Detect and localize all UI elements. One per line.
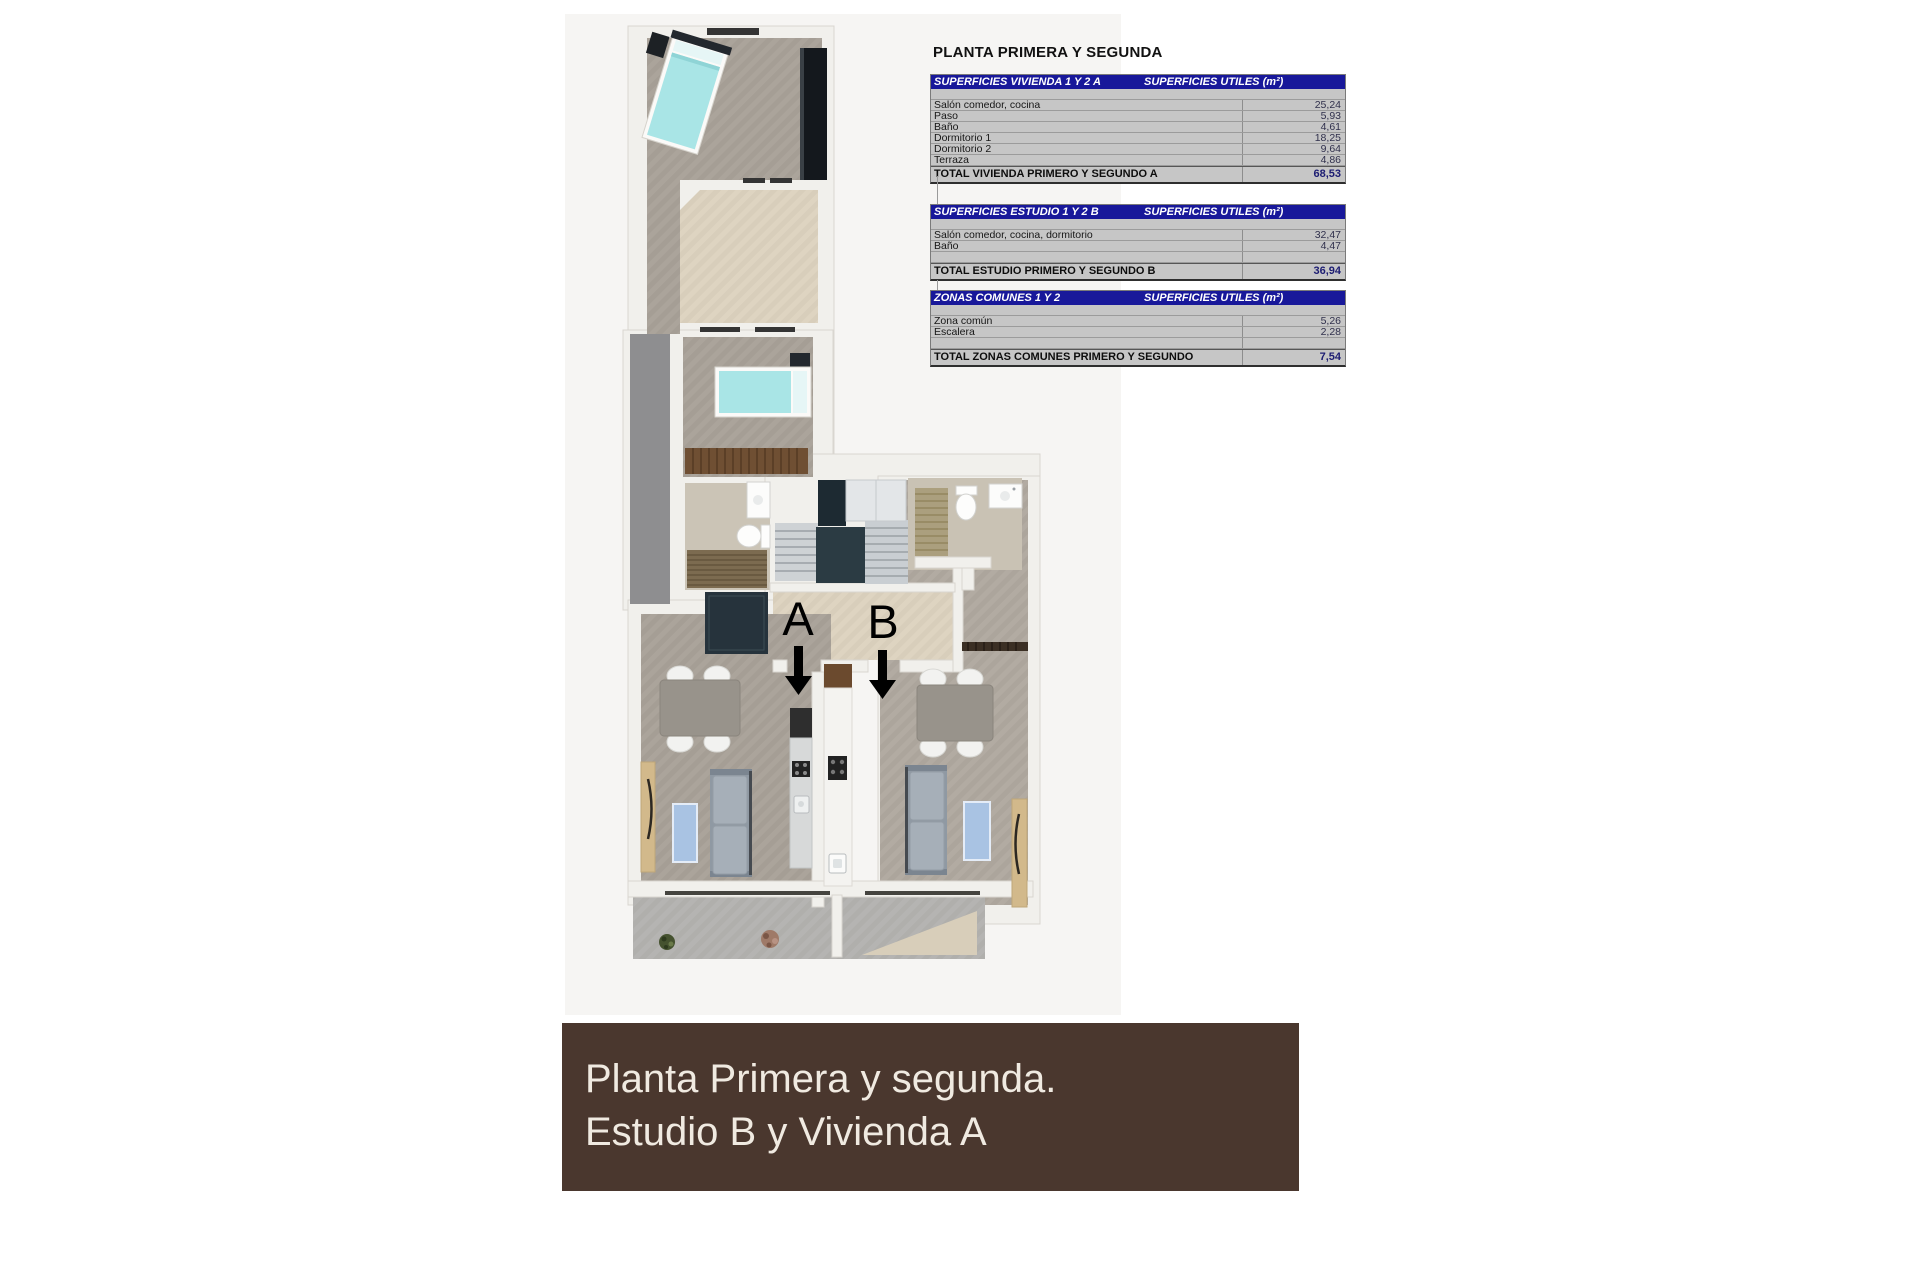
tv-panel-b [1012,799,1027,907]
empty-row [931,219,1345,230]
table-row: Salón comedor, cocina, dormitorio 32,47 [931,230,1345,241]
empty-row [931,338,1345,349]
surface-table-estudio: SUPERFICIES ESTUDIO 1 Y 2 B SUPERFICIES … [930,204,1346,281]
empty-row [931,252,1345,263]
plant-pink [761,930,779,948]
table-title: SUPERFICIES ESTUDIO 1 Y 2 B [934,206,1099,218]
brochure-page: A B PLANTA PRIMERA Y SEGUNDA SUPERFICIES… [0,0,1920,1280]
table-row: Dormitorio 2 9,64 [931,144,1345,155]
table-header: ZONAS COMUNES 1 Y 2 SUPERFICIES UTILES (… [931,291,1345,305]
toilet-b-bowl [956,494,976,520]
toilet-a-tank [761,525,770,548]
table-unit-header: SUPERFICIES UTILES (m²) [1144,75,1283,89]
unit-b-label: B [867,595,898,648]
table-connector-line [937,176,938,206]
table-header: SUPERFICIES VIVIENDA 1 Y 2 A SUPERFICIES… [931,75,1345,89]
shower-a [705,592,768,654]
empty-row [931,89,1345,100]
sofa-a [710,769,752,877]
table-row: Salón comedor, cocina 25,24 [931,100,1345,111]
caption-box: Planta Primera y segunda. Estudio B y Vi… [562,1023,1299,1191]
empty-row [931,305,1345,316]
table-row: Baño 4,47 [931,241,1345,252]
table-unit-header: SUPERFICIES UTILES (m²) [1144,205,1283,219]
table-total-row: TOTAL ZONAS COMUNES PRIMERO Y SEGUNDO 7,… [931,349,1345,365]
table-row: Zona común 5,26 [931,316,1345,327]
table-row: Dormitorio 1 18,25 [931,133,1345,144]
table-row: Paso 5,93 [931,111,1345,122]
floor-terraza [680,190,818,323]
floor-hall-strip [647,180,680,334]
table-title: SUPERFICIES VIVIENDA 1 Y 2 A [934,76,1101,88]
table-row: Escalera 2,28 [931,327,1345,338]
table-row: Baño 4,61 [931,122,1345,133]
tv-panel-a [641,762,655,872]
table-total-row: TOTAL ESTUDIO PRIMERO Y SEGUNDO B 36,94 [931,263,1345,279]
rug-a [673,804,697,862]
wardrobe-dark [800,48,827,180]
table-total-row: TOTAL VIVIENDA PRIMERO Y SEGUNDO A 68,53 [931,166,1345,182]
toilet-a-bowl [737,525,761,547]
wood-wardrobe [685,448,808,474]
kitchen-b [824,664,852,886]
bench-shelf [962,642,1028,651]
surface-table-vivienda: SUPERFICIES VIVIENDA 1 Y 2 A SUPERFICIES… [930,74,1346,184]
floor-patio [630,334,670,604]
page-title: PLANTA PRIMERA Y SEGUNDA [933,44,1163,61]
table-unit-header: SUPERFICIES UTILES (m²) [1144,291,1283,305]
surface-table-zonas-comunes: ZONAS COMUNES 1 Y 2 SUPERFICIES UTILES (… [930,290,1346,367]
rug-b [964,802,990,860]
caption-line-1: Planta Primera y segunda. [585,1053,1299,1106]
unit-a-label: A [782,592,814,645]
sofa-b [905,765,947,875]
kitchen-a [790,708,812,868]
table-row: Terraza 4,86 [931,155,1345,166]
caption-line-2: Estudio B y Vivienda A [585,1106,1299,1159]
plant-green [659,934,675,950]
table-title: ZONAS COMUNES 1 Y 2 [934,292,1060,304]
table-header: SUPERFICIES ESTUDIO 1 Y 2 B SUPERFICIES … [931,205,1345,219]
